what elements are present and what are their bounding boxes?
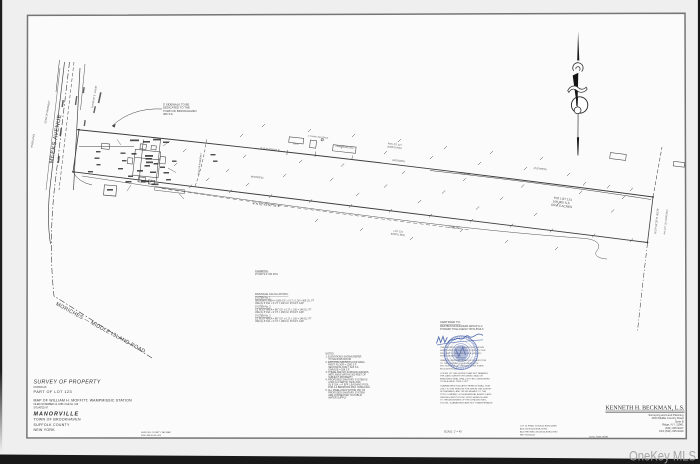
svg-text:DRIVEWAY AREA = 1800 S.F. x 0.: DRIVEWAY AREA = 1800 S.F. x 0.17 x 1.00 …	[255, 299, 315, 302]
svg-text:USE (1) 8' DIA. x 4' FT = 202: USE (1) 8' DIA. x 4' FT = 202 CU. FT/ACT…	[255, 302, 304, 305]
svg-text:MANORVILLE: MANORVILLE	[34, 412, 80, 418]
svg-text:SYSTEM No. 3: SYSTEM No. 3	[255, 315, 271, 317]
svg-text:MAP OF WILLIAM H. MOFFITT, WAM: MAP OF WILLIAM H. MOFFITT, WAMPMISSIC ST…	[34, 398, 133, 402]
svg-text:SYSTEM No. 2: SYSTEM No. 2	[255, 306, 271, 308]
svg-text:ADD REVISED 4/16/2024 BGR-1879: ADD REVISED 4/16/2024 BGR-18790	[520, 431, 558, 434]
svg-text:466 S.F.: 466 S.F.	[163, 112, 173, 116]
svg-text:TUTION. GUARANTEES ARE NOT TRA: TUTION. GUARANTEES ARE NOT TRANSFERABLE	[440, 401, 493, 404]
svg-text:PYRAMID TITLE AGENCY #PTA-5516: PYRAMID TITLE AGENCY #PTA-5516-S	[440, 328, 484, 331]
svg-text:TOWN OF BROOKHAVEN: TOWN OF BROOKHAVEN	[34, 418, 81, 422]
svg-text:SCALE: 1" = 40': SCALE: 1" = 40'	[444, 430, 462, 433]
svg-text:THE LAND SURVEYOR'S INKED SEAL: THE LAND SURVEYOR'S INKED SEAL OR	[440, 375, 483, 378]
svg-text:SITUATED AT: SITUATED AT	[34, 407, 49, 410]
svg-text:LOT 16 FINAL 7/23/2024 BGR-183: LOT 16 FINAL 7/23/2024 BGR-18398	[520, 425, 557, 428]
svg-text:27,000 S.F. OR 25%: 27,000 S.F. OR 25%	[255, 273, 279, 276]
svg-text:OneKey MLS: OneKey MLS	[629, 448, 696, 463]
svg-text:NEW YORK: NEW YORK	[34, 428, 56, 432]
svg-text:REV 9/16/2024: REV 9/16/2024	[520, 435, 536, 437]
svg-text:(631) 345-9427: (631) 345-9427	[665, 426, 684, 430]
svg-text:KNOWN AS: KNOWN AS	[34, 386, 47, 389]
svg-text:0200-389.00-01-023: 0200-389.00-01-023	[141, 435, 162, 437]
svg-text:CERTIFIED TO:: CERTIFIED TO:	[440, 320, 461, 324]
svg-text:EMBOSSED SEAL SHALL NOT BE CON: EMBOSSED SEAL SHALL NOT BE CONSIDERED	[440, 377, 490, 380]
svg-text:FAX (631) 345-9429: FAX (631) 345-9429	[659, 429, 684, 433]
svg-text:SURVEY OF PROPERTY: SURVEY OF PROPERTY	[34, 380, 101, 386]
svg-text:USE (1) 8' DIA. x 4' FT = 168: USE (1) 8' DIA. x 4' FT = 168 CU. FT/ACT…	[255, 311, 304, 314]
svg-text:GUARANTEES INDICATED HEREON SH: GUARANTEES INDICATED HEREON SHALL RUN	[440, 385, 490, 388]
svg-text:SUFFOLK COUNTY: SUFFOLK COUNTY	[34, 423, 70, 427]
svg-text:TO BE A VALID TRUE COPY: TO BE A VALID TRUE COPY	[440, 380, 469, 383]
svg-text:TO THE ASSIGNEES OF THE LENDIN: TO THE ASSIGNEES OF THE LENDING INSTI-	[440, 399, 487, 402]
svg-text:DRAINAGE CALCULATIONS:: DRAINAGE CALCULATIONS:	[255, 293, 289, 296]
svg-text:PART OF LOT 123: PART OF LOT 123	[34, 390, 73, 394]
svg-text:WATER SUPPLY: WATER SUPPLY	[328, 396, 347, 399]
svg-text:LENDING INSTITUTION LISTED HER: LENDING INSTITUTION LISTED HEREON, AND	[440, 396, 488, 399]
svg-text:JN No. BGR-18398: JN No. BGR-18398	[589, 436, 609, 438]
svg-text:TITLE COMPANY, GOVERNMENTAL AG: TITLE COMPANY, GOVERNMENTAL AGENCY AND	[440, 393, 492, 396]
svg-text:FILED NOVEMBER 12, 1896 FILE: FILED NOVEMBER 12, 1896 FILE No. 616	[34, 404, 79, 406]
svg-text:ONLY TO THE PERSON FOR WHOM TH: ONLY TO THE PERSON FOR WHOM THE SURVEY	[440, 388, 492, 390]
svg-text:ADD 6/23/2024 BGR-18760: ADD 6/23/2024 BGR-18760	[520, 428, 548, 431]
svg-text:COPIES OF THIS SURVEY MAP NOT: COPIES OF THIS SURVEY MAP NOT BEARING	[440, 372, 488, 375]
svg-text:SUFFOLK COUNTY TAX MAP: SUFFOLK COUNTY TAX MAP	[141, 431, 171, 434]
svg-text:SYSTEM No. 1: SYSTEM No. 1	[255, 297, 271, 299]
svg-text:USE (1) 8' DIA. x 4' FT = 168: USE (1) 8' DIA. x 4' FT = 168 CU. FT/ACT…	[255, 320, 304, 323]
svg-text:KENNETH H. BECKMAN, L.S.: KENNETH H. BECKMAN, L.S.	[606, 405, 685, 412]
svg-text:1/2 ROOF AREA = 867 S.F. x 0.1: 1/2 ROOF AREA = 867 S.F. x 0.17 x 1.00 =…	[255, 317, 312, 320]
svg-text:IS PREPARED, AND ON HIS BEHALF: IS PREPARED, AND ON HIS BEHALF TO THE	[440, 390, 487, 393]
svg-text:1/2 ROOF AREA = 867 S.F. x 0.1: 1/2 ROOF AREA = 867 S.F. x 0.17 x 1.00 =…	[255, 308, 312, 311]
